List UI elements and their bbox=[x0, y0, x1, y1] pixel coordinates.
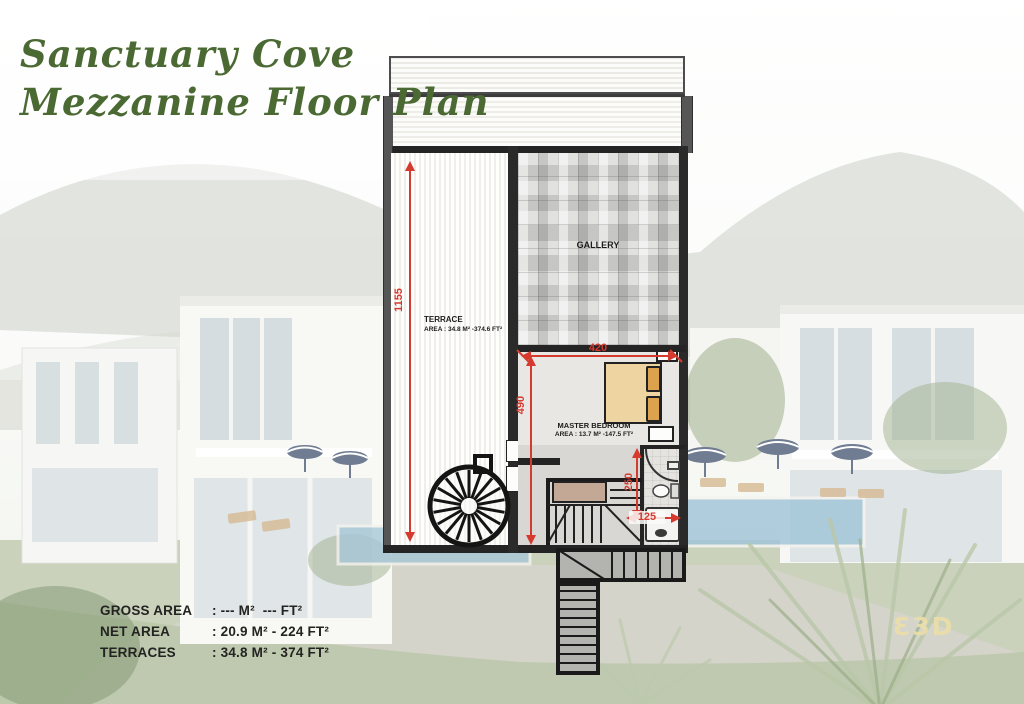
area-summary-table: GROSS AREA : --- M² --- FT² NET AREA : 2… bbox=[100, 600, 329, 663]
area-label: NET AREA bbox=[100, 621, 212, 642]
area-row-gross: GROSS AREA : --- M² --- FT² bbox=[100, 600, 329, 621]
developer-logo: Ɛ3D bbox=[893, 612, 955, 641]
dim-bathroom-length: 250 bbox=[622, 462, 636, 502]
dim-bedroom-width: 420 bbox=[578, 341, 618, 355]
spiral-staircase bbox=[430, 456, 508, 545]
terrace-label: TERRACE bbox=[424, 315, 463, 324]
sink bbox=[667, 461, 680, 470]
area-label: GROSS AREA bbox=[100, 600, 212, 621]
area-value: : --- M² --- FT² bbox=[212, 600, 302, 621]
master-bedroom-area-label: AREA : 13.7 M² -147.5 FT² bbox=[544, 431, 644, 438]
page-title-line1: Sanctuary Cove bbox=[20, 32, 355, 76]
dim-bedroom-depth: 490 bbox=[514, 385, 528, 425]
master-bedroom-label: MASTER BEDROOM bbox=[544, 421, 644, 430]
toilet bbox=[653, 484, 679, 498]
dim-bathroom-width: 125 bbox=[629, 511, 665, 524]
page: TERRACE AREA : 34.8 M² -374.6 FT² GALLER… bbox=[0, 0, 1024, 704]
dim-terrace-length: 1155 bbox=[392, 280, 406, 320]
area-value: : 34.8 M² - 374 FT² bbox=[212, 642, 329, 663]
area-row-terraces: TERRACES : 34.8 M² - 374 FT² bbox=[100, 642, 329, 663]
area-label: TERRACES bbox=[100, 642, 212, 663]
page-title-line2: Mezzanine Floor Plan bbox=[20, 80, 490, 124]
external-stair-treads bbox=[559, 551, 672, 663]
terrace-area-label: AREA : 34.8 M² -374.6 FT² bbox=[424, 326, 502, 333]
area-value: : 20.9 M² - 224 FT² bbox=[212, 621, 329, 642]
gallery-label: GALLERY bbox=[558, 240, 638, 250]
area-row-net: NET AREA : 20.9 M² - 224 FT² bbox=[100, 621, 329, 642]
